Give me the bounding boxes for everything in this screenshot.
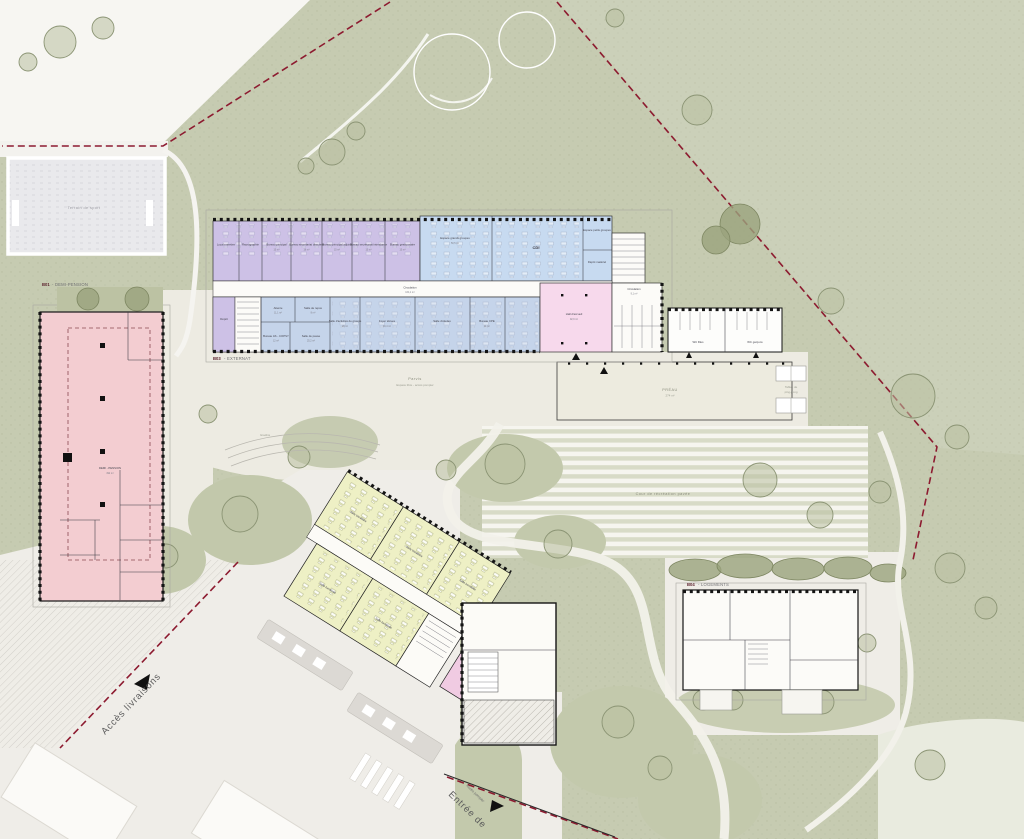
tree-icon	[935, 553, 965, 583]
gradins-label: Gradins	[260, 433, 271, 437]
tree-icon	[319, 139, 345, 165]
b01-room-label: DEMI - PENSION	[99, 466, 121, 470]
wc-garcons-label: WC garçons	[747, 340, 763, 344]
b01-room-area: 492 m²	[106, 472, 114, 475]
tree-icon	[19, 53, 37, 71]
tree-icon	[648, 756, 672, 780]
b03-tag-code: B03	[213, 356, 221, 361]
room-area: 8 m²	[311, 312, 316, 315]
ping-pong-label-1: Tables de	[785, 385, 798, 389]
tree-icon	[288, 446, 310, 468]
tree-icon	[44, 26, 76, 58]
b03-tag-label: - EXTERNAT	[224, 356, 251, 361]
room-label: Espace petits groupes	[583, 228, 611, 232]
room-area: 15 m²	[399, 249, 405, 252]
room-label: Bureau secrétariat directeur	[289, 243, 324, 247]
room-label: Bureau AS - COPSY	[263, 334, 289, 338]
hall-label: Hall d'accueil	[566, 312, 583, 316]
room-area: 18 m²	[303, 249, 309, 252]
tree-icon	[682, 95, 712, 125]
annex-area: 9,1 m²	[631, 293, 638, 296]
room-area: 11,1 m²	[274, 312, 282, 315]
b01-tag-code: B01	[42, 282, 50, 287]
parvis-title: Parvis	[408, 377, 422, 381]
tree-icon	[858, 634, 876, 652]
tree-icon	[602, 706, 634, 738]
tree-icon	[77, 288, 99, 310]
room-label: Salle d'activités de groupe	[329, 319, 362, 323]
tree-icon	[92, 17, 114, 39]
b04-tag-code: B04	[687, 582, 695, 587]
room-label: Bureau secrétariat intendance	[350, 243, 388, 247]
room-label: Bureau principal adjoint	[322, 243, 351, 247]
room-label: Bureau gestionnaire	[390, 243, 415, 247]
corridor-area: 164,1 m²	[405, 291, 415, 294]
corridor-label: Circulation	[403, 286, 417, 290]
preau-canopy: PRÉAU 274 m²	[557, 362, 792, 420]
tree-icon	[807, 502, 833, 528]
b04-tag-label: - LOGEMENTS	[698, 582, 729, 587]
room-area: 15 m²	[334, 249, 340, 252]
tree-icon	[702, 226, 730, 254]
preau-area: 274 m²	[666, 394, 675, 398]
room-area: 11 m²	[484, 325, 490, 328]
room-label: Foyer élèves	[379, 319, 396, 323]
room-label: Salle de repos	[304, 306, 322, 310]
sports-field-label: Terrain de sport	[68, 206, 101, 210]
multipurpose-hall	[462, 603, 556, 745]
tree-icon	[125, 287, 149, 311]
tree-icon	[945, 425, 969, 449]
room-area: 15 m²	[365, 249, 371, 252]
tree-icon	[915, 750, 945, 780]
tree-icon	[436, 460, 456, 480]
room-area: 29 m²	[342, 325, 348, 328]
room-label: Local entretien	[217, 243, 236, 247]
room-label: Dépôt matériel	[588, 260, 607, 264]
room-area: 50,5 m²	[451, 242, 459, 245]
room-area: 25,2 m²	[307, 340, 315, 343]
wc-filles-label: WC filles	[692, 340, 704, 344]
building-b03-externat: Local entretien Reprographie Bureau prin…	[206, 210, 672, 362]
tree-icon	[869, 481, 891, 503]
tree-icon	[975, 597, 997, 619]
tree-icon	[347, 122, 365, 140]
tree-icon	[606, 9, 624, 27]
site-plan-page: Terrain de sport	[0, 0, 1024, 839]
tree-icon	[818, 288, 844, 314]
room-area: 12 m²	[273, 340, 279, 343]
room-area: 15 m²	[273, 249, 279, 252]
wc-block: WC filles WC garçons	[668, 308, 782, 358]
tree-icon	[544, 530, 572, 558]
building-b01-demi-pension: DEMI - PENSION 492 m² B01 - DEMI-PENSION	[33, 282, 170, 607]
preau-label: PRÉAU	[662, 387, 678, 392]
tree-icon	[485, 444, 525, 484]
room-label: Salle de pause	[302, 334, 321, 338]
annex-label: Circulation	[627, 287, 641, 291]
room-label: Bureau CPE	[479, 319, 495, 323]
tree-icon	[891, 374, 935, 418]
room-area: 49,4 m²	[383, 325, 391, 328]
room-label: CDI	[533, 245, 540, 250]
tree-icon	[743, 463, 777, 497]
b01-tag-label: - DEMI-PENSION	[52, 282, 88, 287]
parvis-subtitle: Espace libre - accès pompier	[396, 383, 433, 387]
tree-icon	[222, 496, 258, 532]
room-label: Salle d'études	[433, 319, 451, 323]
tree-icon	[298, 158, 314, 174]
site-plan-drawing: Terrain de sport	[0, 0, 1024, 839]
cour-label: Cour de récréation pavée	[636, 492, 691, 496]
room-label: Bureau principal	[266, 243, 287, 247]
sports-field: Terrain de sport	[8, 158, 165, 254]
room-label: Attente	[274, 306, 283, 310]
ping-pong-label-2: ping-pong	[785, 390, 798, 394]
tree-icon	[199, 405, 217, 423]
room-label: Espace grands groupes	[440, 236, 470, 240]
hall-area: 92,9 m²	[570, 318, 578, 321]
room-label: Dépôt	[220, 317, 228, 321]
room-label: Reprographie	[242, 243, 259, 247]
